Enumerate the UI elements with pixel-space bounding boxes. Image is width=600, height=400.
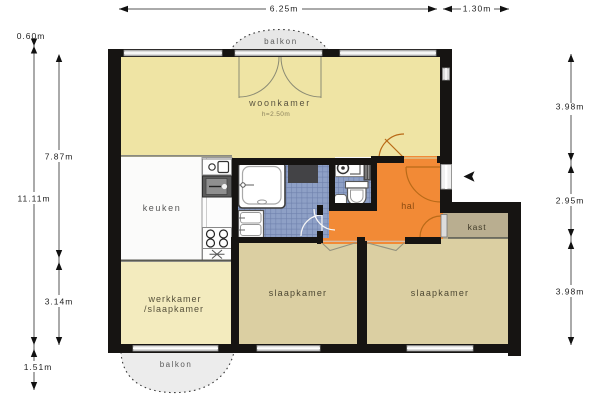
svg-text:6.25m: 6.25m xyxy=(270,4,299,14)
svg-text:0.60m: 0.60m xyxy=(17,31,46,41)
svg-text:3.14m: 3.14m xyxy=(45,297,74,307)
svg-text:3.98m: 3.98m xyxy=(556,102,585,112)
svg-text:slaapkamer: slaapkamer xyxy=(269,288,328,298)
svg-text:balkon: balkon xyxy=(264,37,298,46)
svg-text:keuken: keuken xyxy=(143,203,182,213)
svg-text:hal: hal xyxy=(401,201,415,211)
svg-text:h=2.50m: h=2.50m xyxy=(262,111,290,118)
svg-text:/slaapkamer: /slaapkamer xyxy=(144,304,204,314)
svg-text:kast: kast xyxy=(468,222,487,232)
svg-text:2.95m: 2.95m xyxy=(556,196,585,206)
svg-text:woonkamer: woonkamer xyxy=(248,98,311,108)
svg-text:3.98m: 3.98m xyxy=(556,287,585,297)
svg-text:1.30m: 1.30m xyxy=(463,4,492,14)
svg-text:1.51m: 1.51m xyxy=(24,362,53,372)
svg-text:7.87m: 7.87m xyxy=(45,152,74,162)
svg-text:balkon: balkon xyxy=(160,360,193,369)
svg-text:werkkamer: werkkamer xyxy=(147,294,201,304)
svg-text:11.11m: 11.11m xyxy=(17,194,50,204)
svg-text:slaapkamer: slaapkamer xyxy=(411,288,470,298)
